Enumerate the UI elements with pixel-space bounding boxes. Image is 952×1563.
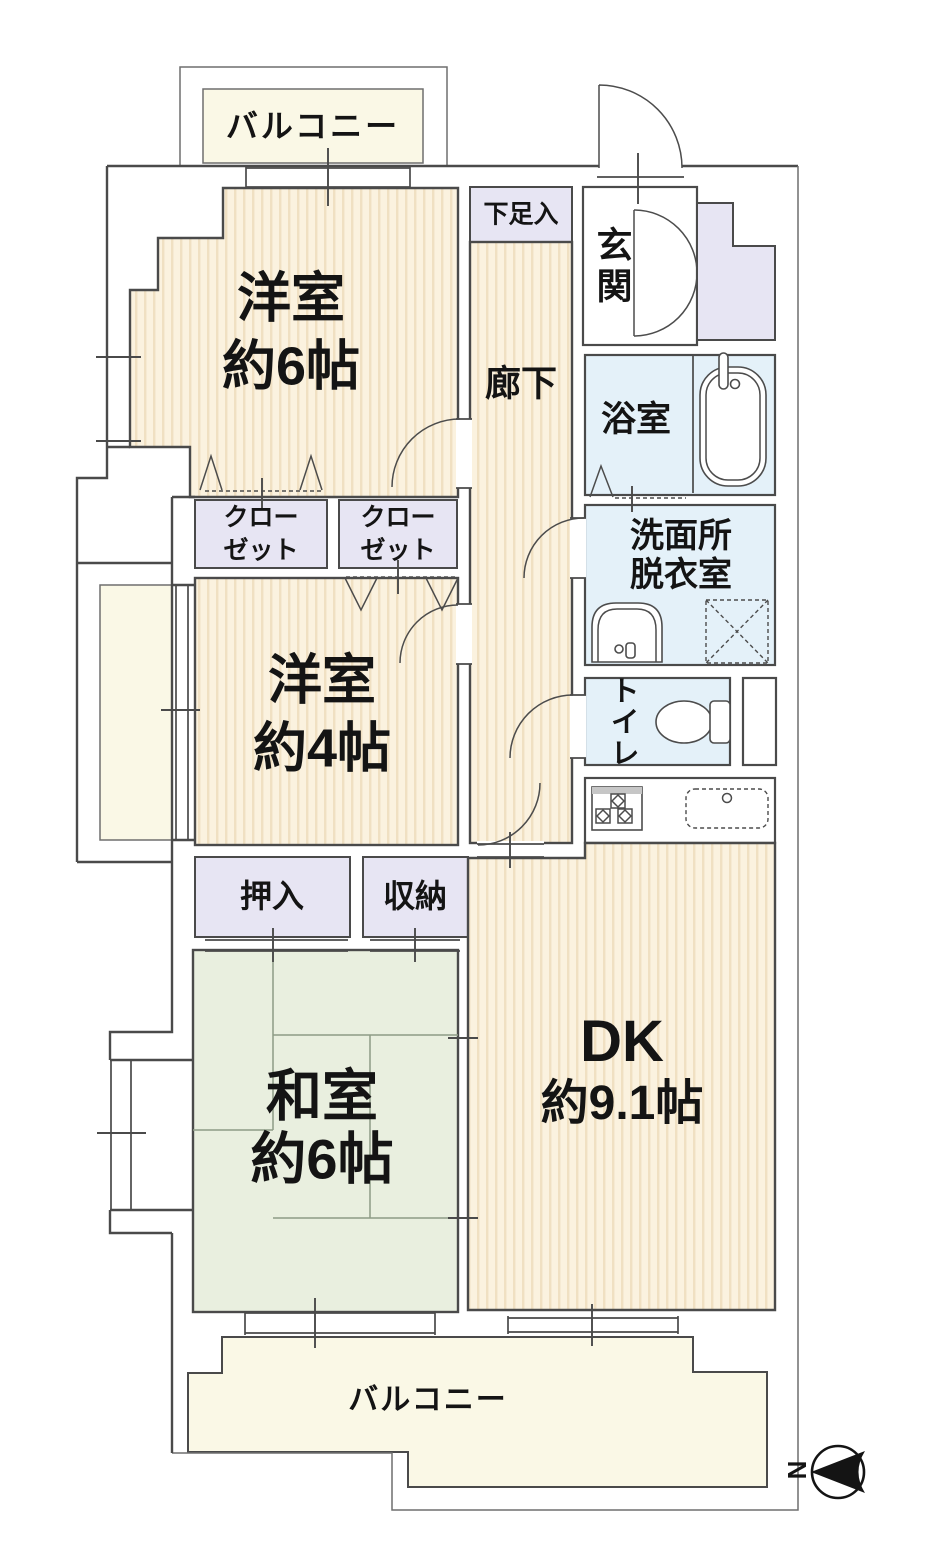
front-door — [599, 85, 682, 168]
closet-a-label-line1: クロー — [223, 502, 298, 535]
floorplan-drawing — [0, 0, 952, 1563]
japanese-room-label: 和室 約6帖 — [250, 1065, 393, 1190]
toilet-side-cabinet — [743, 678, 776, 765]
bath-faucet-icon — [719, 353, 728, 389]
storage-label: 収納 — [383, 876, 447, 916]
washroom-label-line1: 洗面所 — [630, 517, 732, 556]
side-bay-floor — [100, 585, 172, 840]
western-room-4-name: 洋室 — [253, 648, 391, 716]
western-room-6-size: 約6帖 — [222, 333, 360, 401]
corridor-label: 廊下 — [485, 361, 557, 406]
western-room-6-label: 洋室 約6帖 — [222, 266, 360, 401]
japanese-room-name: 和室 — [250, 1065, 393, 1128]
western-room-4-label: 洋室 約4帖 — [253, 648, 391, 783]
balcony-top-label: バルコニー — [226, 106, 400, 146]
oshiire-label: 押入 — [240, 876, 304, 916]
closet-a-label: クロー ゼット — [223, 502, 298, 567]
floorplan-canvas: バルコニー 洋室 約6帖 下足入 玄関 廊下 浴室 洗面所 脱衣室 クロー ゼッ… — [0, 0, 952, 1563]
shoe-cabinet-label: 下足入 — [483, 199, 558, 230]
corridor-floor — [470, 242, 572, 843]
dk-size: 約9.1帖 — [541, 1074, 704, 1134]
entrance-storage-area — [697, 203, 775, 340]
toilet-bowl-icon — [656, 701, 712, 743]
closet-a-label-line2: ゼット — [223, 534, 298, 567]
closet-b-label-line1: クロー — [360, 502, 435, 535]
compass-icon — [811, 1446, 865, 1498]
toilet-label: トイレ — [604, 676, 640, 769]
toilet-tank-icon — [710, 701, 730, 743]
washroom-label: 洗面所 脱衣室 — [630, 517, 732, 595]
closet-b-label: クロー ゼット — [360, 502, 435, 567]
dk-name: DK — [541, 1010, 704, 1074]
entrance-label: 玄関 — [590, 226, 635, 308]
closet-b-label-line2: ゼット — [360, 534, 435, 567]
western-room-4-size: 約4帖 — [253, 715, 391, 783]
washroom-label-line2: 脱衣室 — [630, 556, 732, 595]
dk-label: DK 約9.1帖 — [541, 1010, 704, 1134]
western-room-6-name: 洋室 — [222, 266, 360, 334]
bathroom-label: 浴室 — [601, 398, 671, 442]
japanese-room-size: 約6帖 — [250, 1128, 393, 1191]
compass-north-label: N — [781, 1461, 814, 1480]
room-floors — [100, 67, 776, 1487]
balcony-bottom-label: バルコニー — [348, 1381, 507, 1419]
